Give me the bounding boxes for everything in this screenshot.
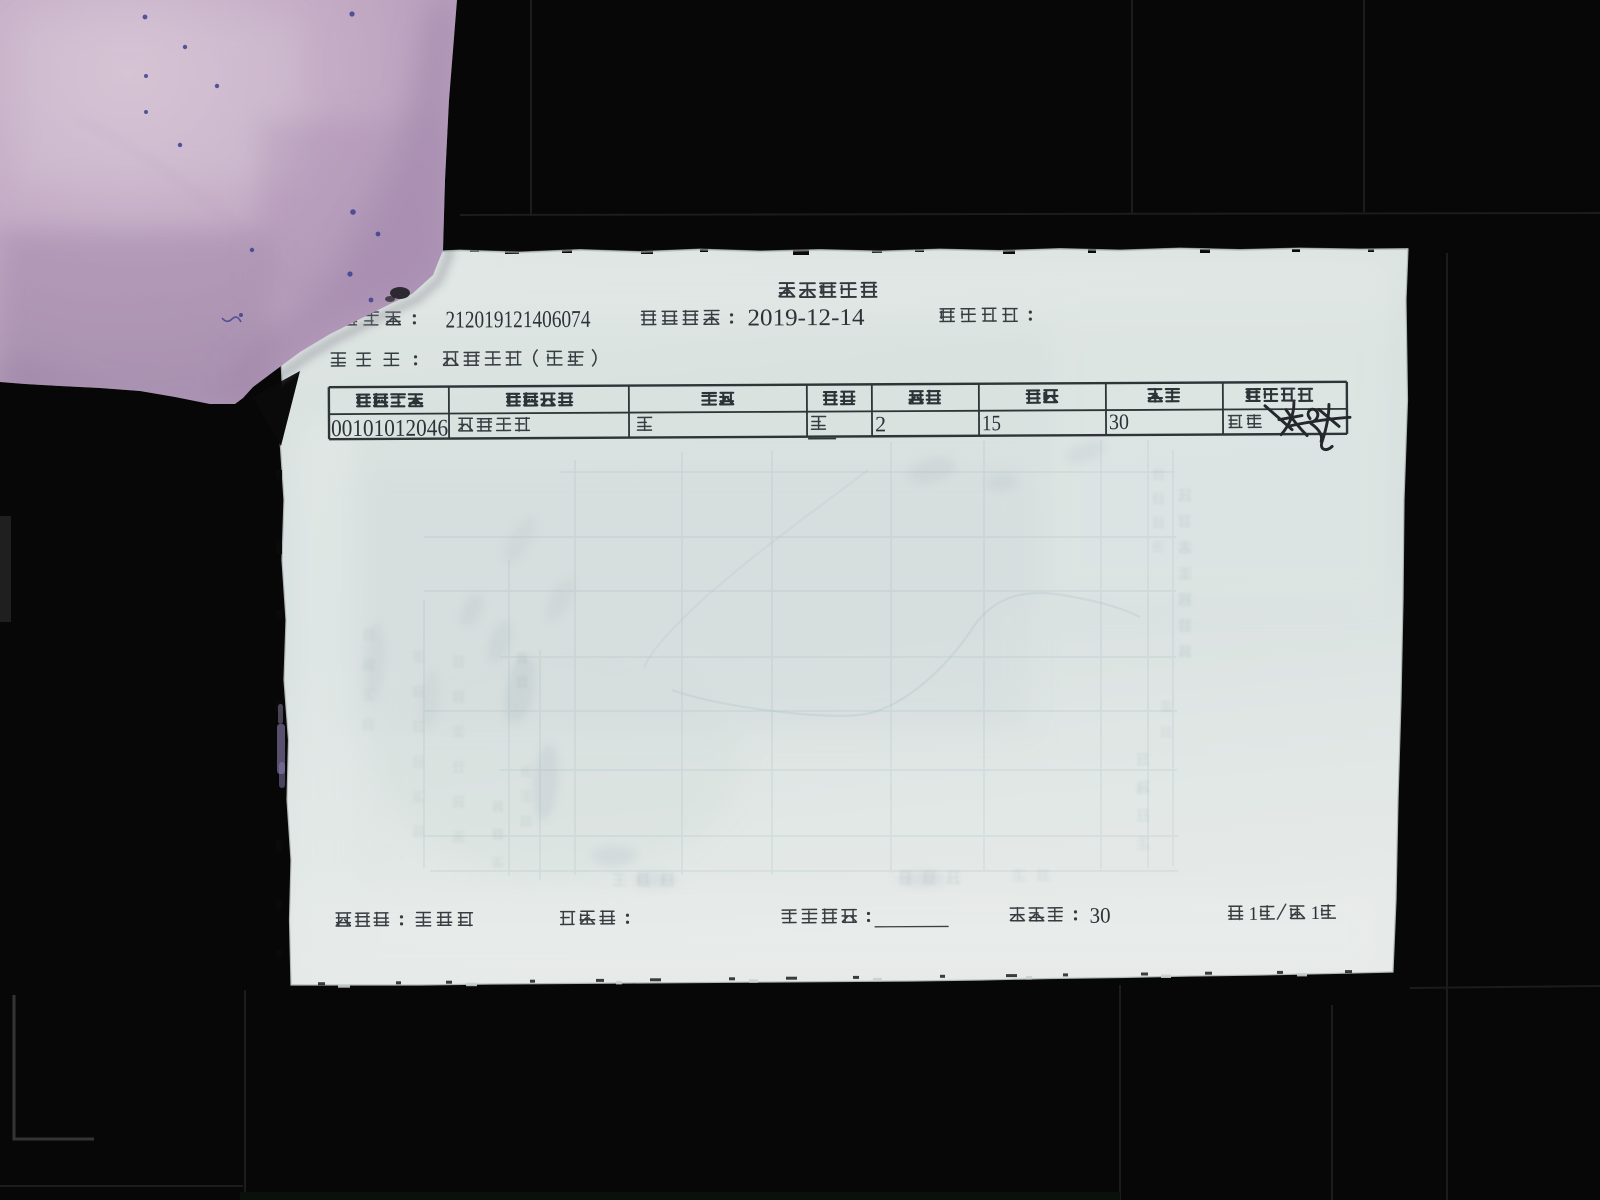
svg-text:15: 15 [982,410,1001,435]
svg-text:30: 30 [1090,903,1111,928]
svg-text:00101012046: 00101012046 [331,416,448,443]
svg-text:212019121406074: 212019121406074 [445,307,590,334]
svg-text:30: 30 [1109,409,1129,434]
svg-text:1: 1 [1311,903,1322,924]
svg-text:1: 1 [1249,904,1260,925]
svg-text:2: 2 [875,411,887,436]
svg-text:2019-12-14: 2019-12-14 [747,305,864,332]
